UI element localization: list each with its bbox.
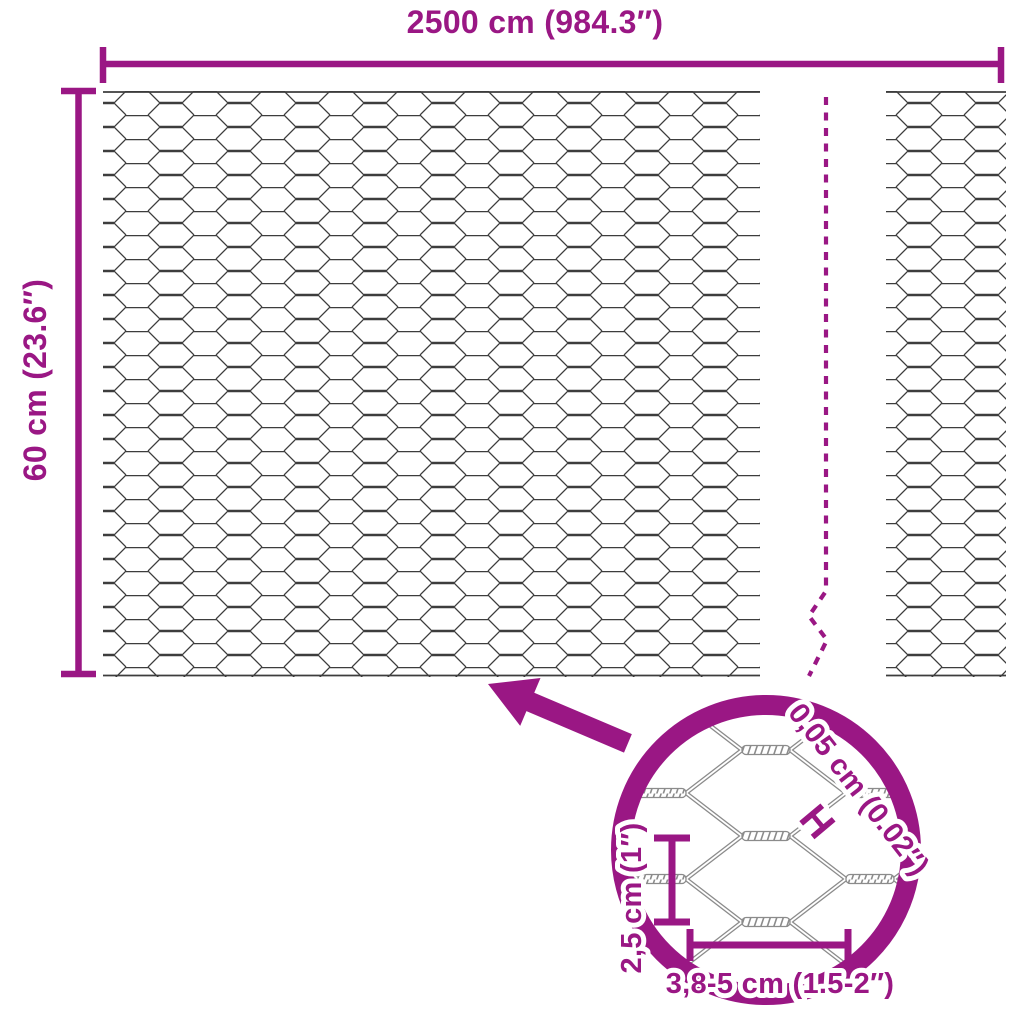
diagram-canvas: 2500 cm (984.3″) 60 cm (23.6″) [0, 0, 1024, 1024]
mesh-panel-right [886, 91, 1006, 677]
product-dimension-diagram: 2500 cm (984.3″) 60 cm (23.6″) [0, 0, 1024, 1024]
width-dimension-label: 2500 cm (984.3″) [407, 4, 664, 40]
height-dimension-label: 60 cm (23.6″) [17, 279, 53, 481]
mesh-panel-main [103, 91, 760, 677]
top-dimension: 2500 cm (984.3″) [103, 4, 1001, 83]
detail-view: 0,05 cm (0.02″) H 2,5 cm (1″) 3,8-5 cm (… [616, 698, 935, 1000]
left-dimension: 60 cm (23.6″) [17, 90, 96, 676]
break-line [809, 97, 827, 676]
mesh-height-label: 2,5 cm (1″) [616, 823, 648, 974]
mesh-width-label: 3,8-5 cm (1.5-2″) [666, 968, 895, 1000]
